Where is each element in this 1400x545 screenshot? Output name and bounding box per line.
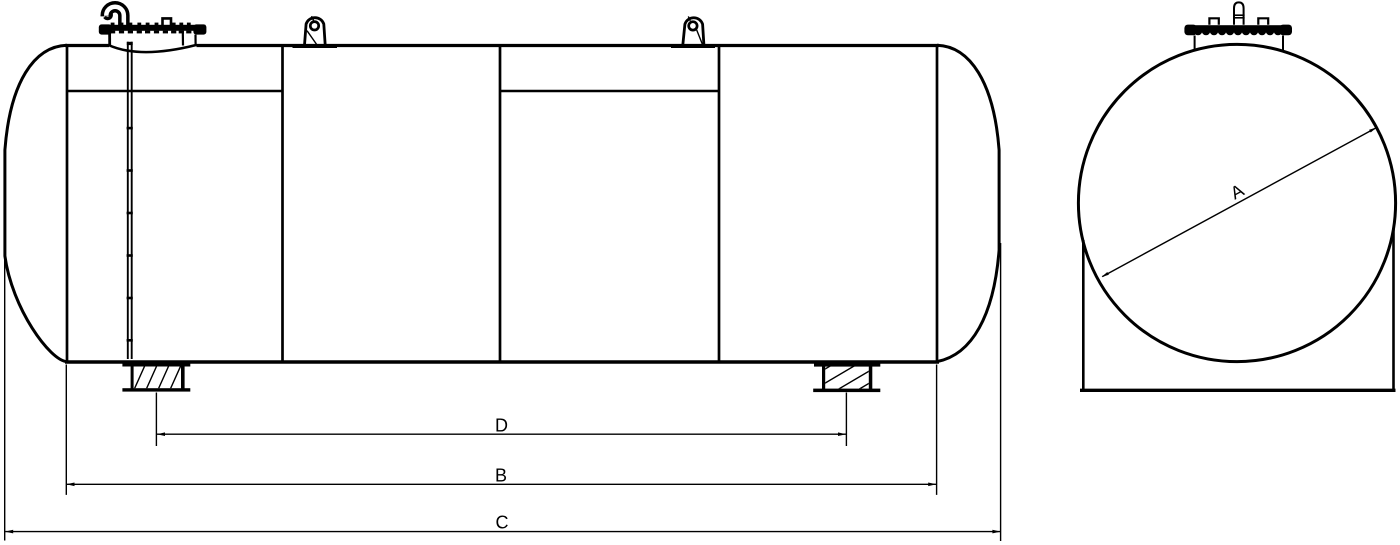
svg-text:B: B	[495, 465, 507, 485]
svg-text:C: C	[496, 513, 509, 533]
svg-text:D: D	[495, 416, 508, 436]
